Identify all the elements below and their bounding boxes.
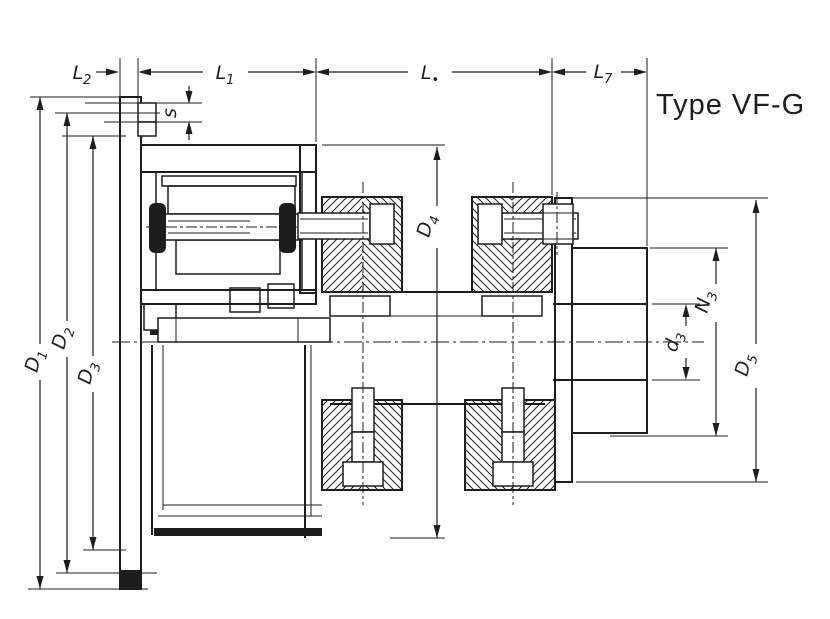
upper-left-bolt-shank <box>298 213 370 239</box>
upper-left-bolt-head <box>370 204 394 244</box>
front-collar-step <box>138 122 156 136</box>
bearing-right <box>279 203 296 253</box>
bearing-left <box>149 203 166 253</box>
upper-left-hub-section <box>322 197 362 292</box>
input-shaft <box>158 318 330 342</box>
type-designation-label: Type VF-G <box>656 89 805 121</box>
upper-right-bolt-head <box>478 204 502 244</box>
technical-drawing: L2 L1 L• L7 <box>0 0 830 619</box>
flange-stud <box>543 204 573 244</box>
shell-bottom-rim <box>154 528 322 536</box>
dim-label-s: s <box>159 108 181 118</box>
scanned-drawing-page: L2 L1 L• L7 <box>0 0 830 619</box>
